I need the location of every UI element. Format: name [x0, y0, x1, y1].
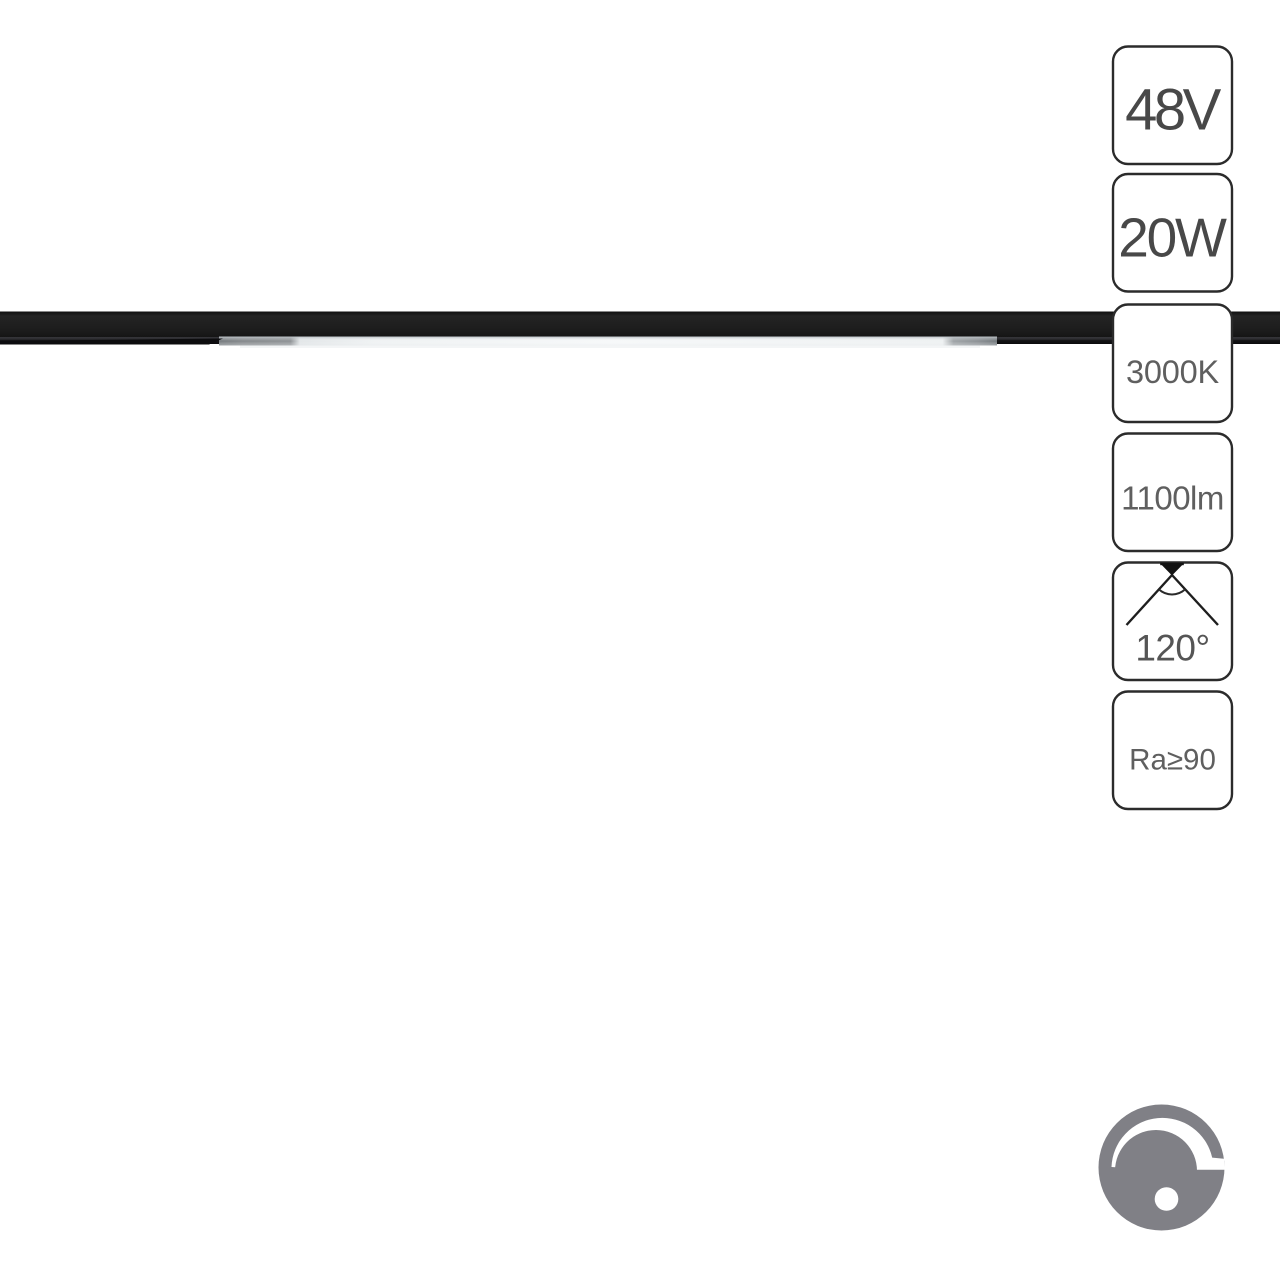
svg-text:Ra≥90: Ra≥90 — [1129, 744, 1216, 777]
svg-text:3000K: 3000K — [1126, 354, 1219, 390]
svg-text:48V: 48V — [1125, 78, 1222, 143]
svg-text:120°: 120° — [1135, 628, 1209, 669]
svg-text:20W: 20W — [1118, 207, 1227, 269]
svg-text:1100lm: 1100lm — [1121, 480, 1224, 517]
